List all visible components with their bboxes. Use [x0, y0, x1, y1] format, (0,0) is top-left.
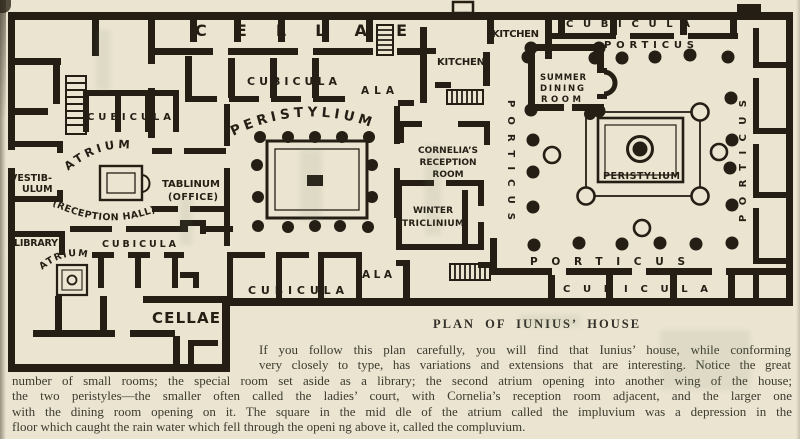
label-library: LIBRARY: [14, 238, 58, 249]
label-summer-3: ROOM: [541, 95, 581, 105]
staircase-kitchen: [447, 90, 483, 104]
label-ala-top: ALA: [361, 85, 395, 97]
label-vestibulum-2: ULUM: [22, 184, 53, 195]
top-entrance-notch: [453, 2, 473, 13]
plan-walls: [8, 4, 793, 372]
label-cubicula-bottomcenter: CUBICULA: [248, 284, 344, 297]
label-winter-1: WINTER: [413, 206, 453, 216]
floor-plan: CELLAE CUBICULA CUBICULA ALA KITCHEN KIT…: [0, 0, 800, 374]
label-cornelia-2: RECEPTION: [419, 158, 476, 168]
staircase-top-left: [66, 76, 86, 134]
label-summer-1: SUMMER: [540, 73, 586, 83]
label-cellae-top: CELLAE: [195, 21, 407, 40]
page-edge-shadow-right: [796, 0, 800, 439]
paragraph-line: with the dining room opening on it. The …: [12, 404, 792, 419]
paragraph-line: very closely to type, has variations and…: [259, 357, 791, 372]
label-tablinum-1: TABLINUM: [162, 179, 220, 190]
scanned-book-page: CELLAE CUBICULA CUBICULA ALA KITCHEN KIT…: [0, 0, 800, 439]
label-summer-2: DINING: [540, 84, 584, 94]
label-porticus-left-vertical: PORTICUS: [505, 100, 516, 220]
label-cubicula-midtop: CUBICULA: [247, 75, 337, 88]
staircase-cellae: [377, 25, 393, 55]
paragraph-line: the two peristyles—the smaller often cal…: [12, 388, 792, 403]
column-dots: [251, 42, 739, 252]
label-porticus-bottom: PORTICUS: [530, 256, 685, 268]
fountain-center: [633, 142, 648, 157]
paragraph-line: number of small rooms; the special room …: [12, 373, 792, 388]
label-tablinum-2: (OFFICE): [168, 192, 218, 203]
label-vestibulum-1: VESTIB-: [10, 173, 52, 184]
label-peristylium-right: PERISTYLIUM: [603, 171, 680, 182]
label-cubicula-lowerleft: CUBICULA: [102, 239, 177, 250]
label-atrium-small: ATRIUM: [37, 248, 90, 272]
label-cubicula-bottomright: CUBICULA: [563, 284, 708, 295]
label-cornelia-3: ROOM: [432, 170, 463, 180]
paragraph-line: floor which caught the rain water which …: [12, 419, 792, 434]
label-cubicula-topright: CUBICULA: [566, 19, 690, 30]
label-ala-bottom: ALA: [362, 269, 393, 281]
paragraph-line: If you follow this plan carefully, you w…: [259, 342, 791, 357]
label-porticus-right-vertical: PORTICUS: [738, 100, 749, 222]
right-peristyle: [586, 112, 700, 196]
label-porticus-top: PORTICUS: [604, 40, 694, 51]
label-cellae-bottom: CELLAE: [152, 309, 220, 327]
label-winter-2: TRICLINIUM: [402, 219, 464, 229]
left-peristyle-pool: [267, 141, 367, 218]
small-atrium-impluvium: [57, 265, 87, 295]
label-atrium-main: ATRIUM: [61, 137, 133, 173]
label-kitchen-left: KITCHEN: [437, 57, 485, 68]
label-kitchen-top: KITCHEN: [492, 29, 539, 40]
atrium-impluvium: [100, 166, 150, 200]
label-peristylium-left: PERISTYLIUM: [228, 104, 378, 139]
label-cubicula-topleft: CUBICULA: [87, 112, 171, 123]
label-cornelia-1: CORNELIA’S: [418, 146, 478, 156]
label-reception-hall: (RECEPTION HALL): [51, 198, 158, 223]
summer-room-apse: [604, 72, 615, 94]
figure-caption: PLAN OF IUNIUS’ HOUSE: [433, 317, 641, 332]
